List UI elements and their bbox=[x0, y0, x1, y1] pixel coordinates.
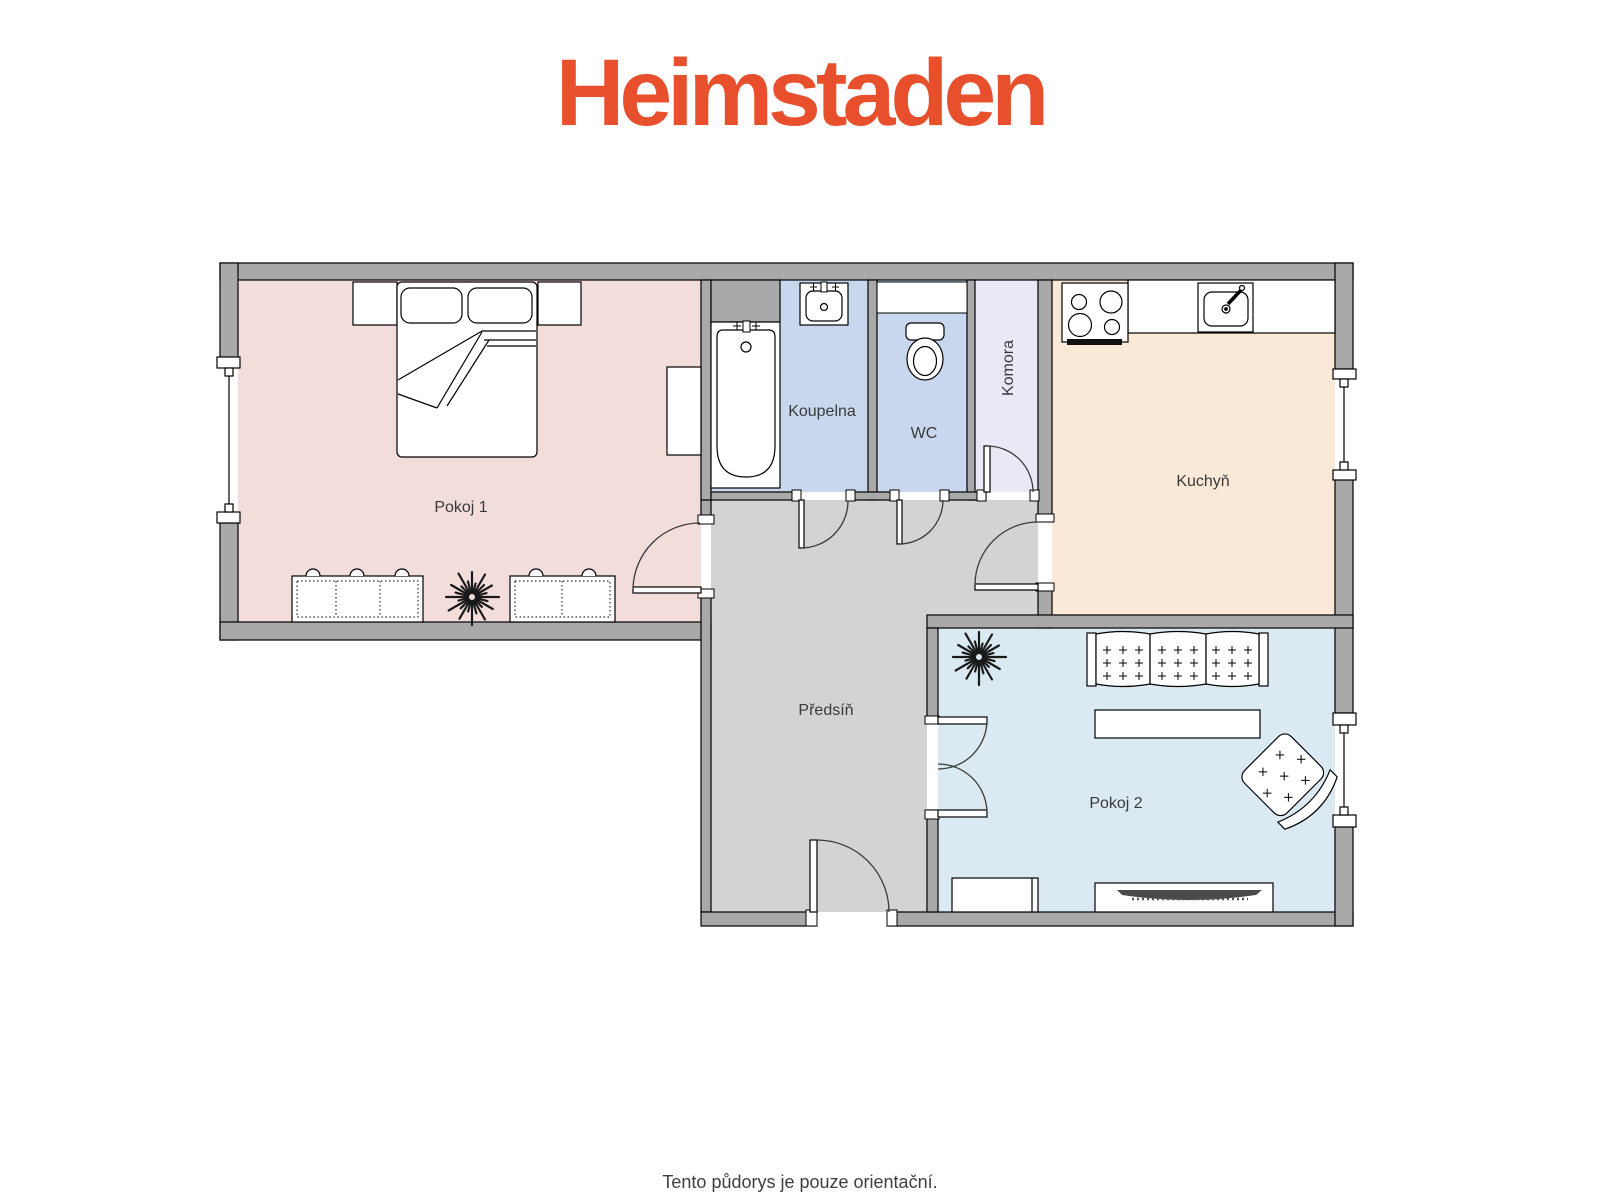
bathroom-sink-icon bbox=[800, 282, 848, 325]
shaft bbox=[711, 280, 780, 322]
tv-stand-icon bbox=[1095, 883, 1273, 912]
door-leaf-komora bbox=[984, 446, 990, 492]
door-leaf-pokoj2-top bbox=[938, 717, 987, 724]
cabinet-icon bbox=[952, 878, 1038, 912]
window-pokoj2-right bbox=[1333, 713, 1356, 827]
room-label-kuchyn: Kuchyň bbox=[1176, 473, 1229, 490]
bathtub-icon bbox=[711, 321, 780, 488]
room-label-koupelna: Koupelna bbox=[788, 403, 856, 420]
nightstand-left bbox=[353, 282, 397, 325]
disclaimer-note: Tento půdorys je pouze orientační. bbox=[0, 1172, 1600, 1193]
room-label-komora: Komora bbox=[1000, 340, 1017, 396]
coffee-table-icon bbox=[1095, 710, 1260, 738]
room-label-pokoj2: Pokoj 2 bbox=[1089, 795, 1142, 812]
window-kuchyn-right bbox=[1333, 369, 1356, 480]
door-leaf-wc bbox=[897, 500, 902, 544]
room-label-wc: WC bbox=[911, 425, 938, 442]
door-leaf-kuchyn bbox=[975, 584, 1038, 590]
floorplan-diagram: Pokoj 1 Koupelna WC Komora Kuchyň Předsí… bbox=[0, 0, 1600, 1200]
room-label-predsin: Předsíň bbox=[798, 702, 853, 719]
door-leaf-entry bbox=[810, 840, 817, 912]
room-label-pokoj1: Pokoj 1 bbox=[434, 499, 487, 516]
kitchen-sink-icon bbox=[1198, 283, 1253, 332]
door-leaf-koupelna bbox=[799, 500, 804, 548]
door-leaf-pokoj1 bbox=[633, 587, 701, 593]
door-leaf-pokoj2-bottom bbox=[938, 810, 987, 817]
nightstand-right bbox=[538, 282, 581, 325]
toilet-icon bbox=[906, 323, 944, 380]
window-pokoj1-left bbox=[217, 357, 240, 523]
bed-icon bbox=[397, 282, 537, 457]
page: Heimstaden bbox=[0, 0, 1600, 1200]
wardrobe-icon bbox=[667, 367, 701, 455]
heimstaden-logo: Heimstaden bbox=[0, 46, 1600, 141]
stove-icon bbox=[1062, 283, 1128, 345]
sofa-icon bbox=[1087, 632, 1268, 687]
dresser-left-icon bbox=[292, 569, 423, 622]
dresser-right-icon bbox=[510, 569, 615, 622]
wc-shaft-box bbox=[877, 282, 967, 313]
